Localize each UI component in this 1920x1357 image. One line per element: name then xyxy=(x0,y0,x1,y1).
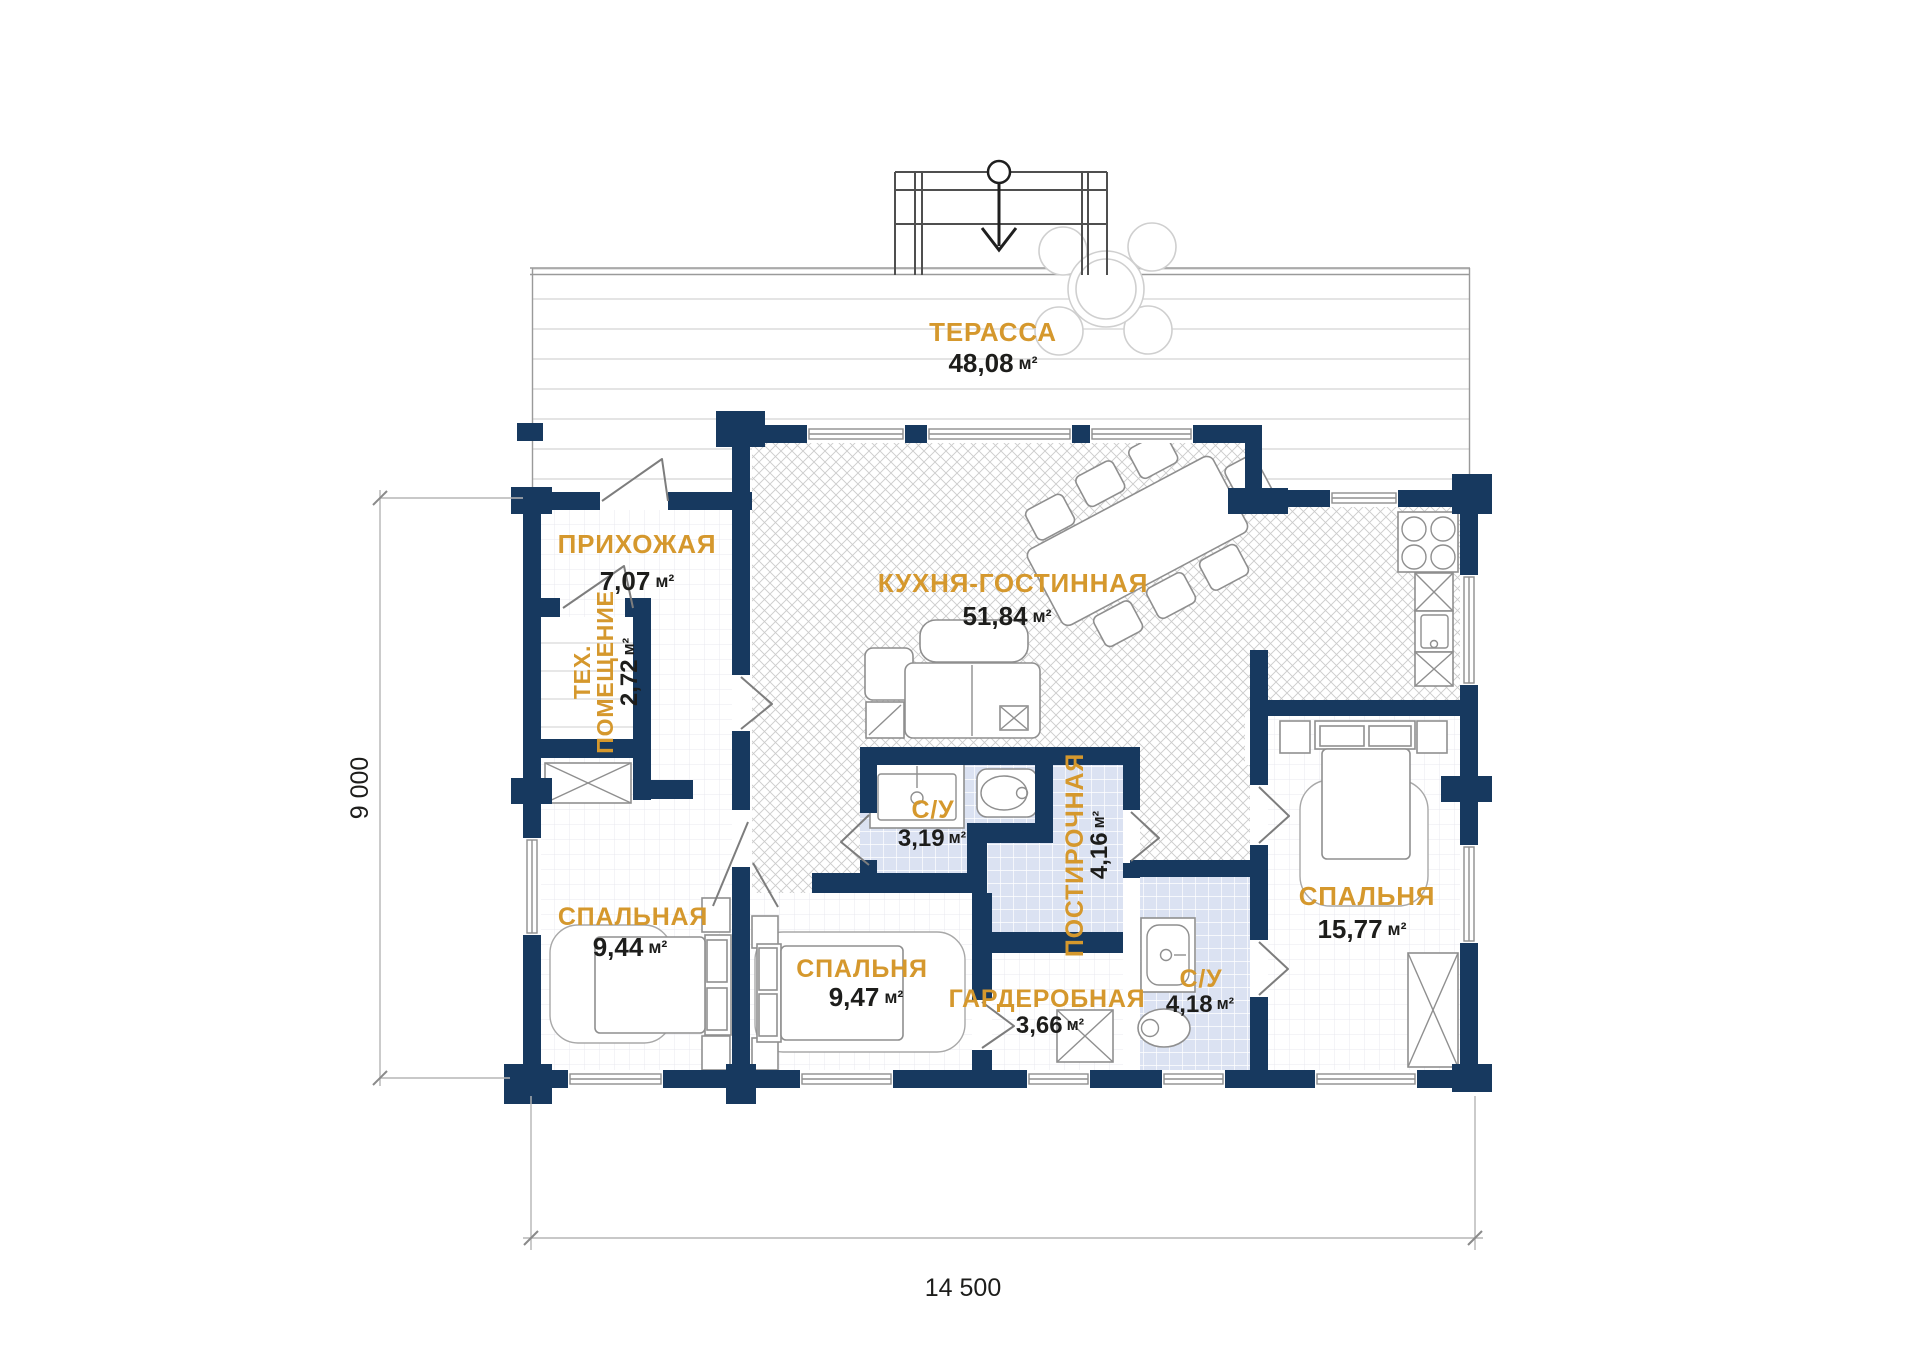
wardrobe-cabinet xyxy=(1057,1010,1113,1062)
window xyxy=(1162,1070,1225,1088)
window xyxy=(1460,845,1478,943)
svg-text:СПАЛЬНЯ: СПАЛЬНЯ xyxy=(1299,881,1436,911)
window xyxy=(523,838,541,935)
dimension-height-label: 9 000 xyxy=(346,757,374,820)
window xyxy=(1090,425,1193,443)
svg-text:ПОСТИРОЧНАЯ: ПОСТИРОЧНАЯ xyxy=(1061,753,1089,957)
kitchen-counter xyxy=(1415,573,1453,686)
window xyxy=(1330,490,1398,507)
wardrobe-master xyxy=(1408,953,1458,1067)
window xyxy=(1315,1070,1417,1088)
window xyxy=(1027,1070,1090,1088)
window xyxy=(800,1070,893,1088)
dimension-width-label: 14 500 xyxy=(925,1274,1001,1302)
svg-text:КУХНЯ-ГОСТИННАЯ: КУХНЯ-ГОСТИННАЯ xyxy=(878,568,1149,598)
kitchen-stove xyxy=(1398,512,1458,572)
floor-plan-svg: 9 000 14 500 ТЕРАССА 48,08м² ПРИХОЖАЯ 7,… xyxy=(0,0,1920,1357)
svg-text:ПРИХОЖАЯ: ПРИХОЖАЯ xyxy=(558,529,717,559)
bed-master xyxy=(1280,721,1447,906)
svg-text:СПАЛЬНАЯ: СПАЛЬНАЯ xyxy=(558,903,708,931)
window xyxy=(807,425,905,443)
entrance-arrow-icon xyxy=(982,161,1016,250)
washer-closet xyxy=(545,763,631,803)
svg-text:ГАРДЕРОБНАЯ: ГАРДЕРОБНАЯ xyxy=(949,985,1146,1013)
window xyxy=(927,425,1072,443)
svg-text:С/У: С/У xyxy=(912,796,955,824)
svg-text:ПОМЕЩЕНИЕ: ПОМЕЩЕНИЕ xyxy=(592,590,618,753)
svg-text:СПАЛЬНЯ: СПАЛЬНЯ xyxy=(796,955,928,983)
window xyxy=(1460,575,1478,685)
floor-plan-page: 9 000 14 500 ТЕРАССА 48,08м² ПРИХОЖАЯ 7,… xyxy=(0,0,1920,1357)
svg-text:ТЕРАССА: ТЕРАССА xyxy=(929,317,1057,347)
svg-text:С/У: С/У xyxy=(1180,965,1223,993)
window xyxy=(568,1070,663,1088)
